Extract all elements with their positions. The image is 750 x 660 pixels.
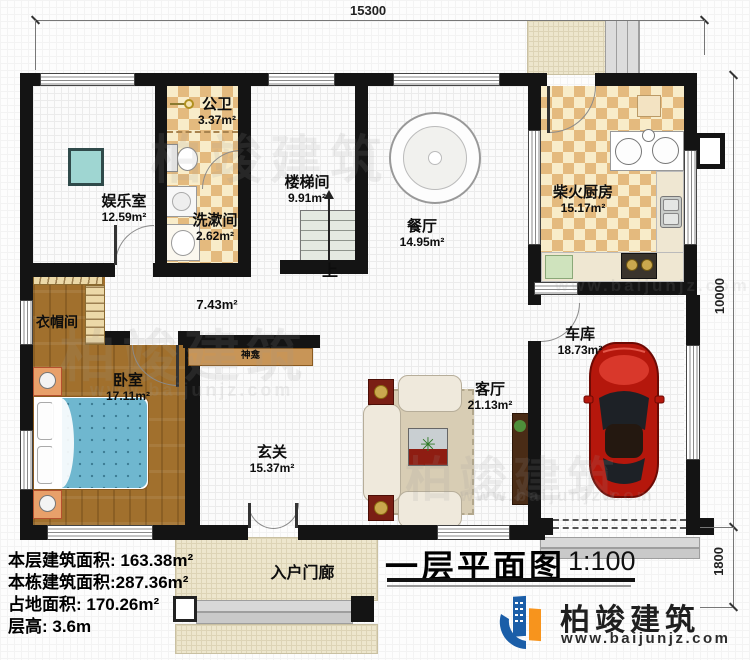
dim-line-right-lower <box>733 527 734 607</box>
dim-ext <box>35 20 36 70</box>
wall <box>686 295 700 345</box>
door-leaf <box>547 86 550 133</box>
info-block: 本层建筑面积: 163.38m² 本栋建筑面积:287.36m² 占地面积: 1… <box>8 550 193 638</box>
chimney <box>695 133 725 169</box>
info-total-area: 本栋建筑面积:287.36m² <box>8 572 193 594</box>
room-label-stairwell: 楼梯间9.91m² <box>278 175 336 205</box>
room-label-bedroom: 卧室17.11m² <box>102 373 154 403</box>
wall <box>686 460 700 518</box>
wall <box>528 341 541 518</box>
wall <box>528 295 541 305</box>
window <box>686 345 700 460</box>
wardrobe-shelf <box>85 285 105 345</box>
room-label-living: 客厅21.13m² <box>462 382 518 412</box>
room-label-cloakroom: 衣帽间 <box>28 315 86 331</box>
entry-porch-step <box>196 612 353 624</box>
dim-line-right <box>733 75 734 527</box>
room-label-public-bath: 公卫3.37m² <box>192 97 242 127</box>
wok-burner <box>652 137 679 164</box>
title-underline-thin <box>387 585 631 587</box>
entry-porch-lower <box>175 624 378 654</box>
stairs-up-label: 上 <box>318 263 342 281</box>
window <box>393 73 500 86</box>
entry-door-left <box>248 503 274 529</box>
lamp <box>39 495 56 512</box>
dim-ext <box>700 527 733 528</box>
wall <box>500 73 547 86</box>
wall <box>20 525 47 540</box>
dim-ext <box>700 607 733 608</box>
plan-scale: 1:100 <box>568 546 636 577</box>
toilet-bowl <box>177 147 198 171</box>
dim-ext <box>704 20 705 55</box>
lamp <box>39 372 56 389</box>
pass-through-window <box>534 282 578 295</box>
dim-top-width: 15300 <box>350 3 386 18</box>
floor-plan: 15300 10000 1800 <box>0 0 750 660</box>
garage-door-dashed <box>553 527 686 529</box>
blanket <box>62 398 147 488</box>
cutting-board <box>545 255 573 279</box>
wall <box>298 525 437 540</box>
sofa-bottom <box>398 491 462 528</box>
sink-basin <box>663 199 679 211</box>
window <box>20 430 33 490</box>
window <box>40 73 135 86</box>
wall <box>135 73 268 86</box>
entry-porch-step <box>196 600 353 612</box>
sofa-top <box>398 375 462 412</box>
coffee-table-plant: ✳ <box>418 436 438 456</box>
wall <box>528 86 541 130</box>
room-label-washroom: 洗漱间2.62m² <box>186 213 244 243</box>
washing-machine-drum <box>172 192 191 211</box>
wall <box>20 345 33 430</box>
wall <box>355 86 368 274</box>
window <box>684 150 697 245</box>
car <box>583 340 665 500</box>
wok-burner <box>615 138 642 165</box>
shrine-label: 神龛 <box>188 351 313 362</box>
gas-burner <box>641 259 653 271</box>
room-label-foyer: 玄关15.37m² <box>244 445 300 475</box>
dim-right-height: 10000 <box>712 278 727 314</box>
bath-curb <box>167 131 238 133</box>
dim-line-top <box>35 20 705 21</box>
wall <box>595 73 697 86</box>
gas-burner <box>626 259 638 271</box>
dining-table-center <box>428 151 442 165</box>
window <box>528 130 541 245</box>
window <box>47 525 153 540</box>
wall <box>528 518 553 535</box>
window <box>268 73 335 86</box>
room-label-porch: 入户门廊 <box>250 565 355 583</box>
room-label-garage: 车库18.73m² <box>552 327 608 357</box>
dim-porch-depth: 1800 <box>711 547 726 576</box>
porch-pillar-right <box>351 596 374 622</box>
back-porch-steps <box>605 20 640 75</box>
info-footprint-area: 占地面积: 170.26m² <box>8 594 193 616</box>
room-label-entertainment: 娱乐室12.59m² <box>89 194 159 224</box>
door-leaf <box>176 345 179 387</box>
brand-logo-icon <box>496 592 554 652</box>
wall <box>153 263 251 277</box>
door-leaf <box>248 503 251 528</box>
small-pot <box>642 129 655 142</box>
game-table <box>68 148 104 186</box>
door-leaf <box>114 225 117 265</box>
wall <box>335 73 393 86</box>
corridor-area-label: 7.43m² <box>192 298 242 313</box>
wall <box>155 86 167 268</box>
firewood-box <box>637 95 661 117</box>
shrine-wall <box>183 335 320 348</box>
wall <box>20 263 115 277</box>
room-label-kitchen: 柴火厨房15.17m² <box>548 185 618 215</box>
side-lamp <box>374 501 388 515</box>
info-floor-height: 层高: 3.6m <box>8 616 193 638</box>
sink-basin <box>663 213 679 225</box>
tv-plant <box>514 420 526 432</box>
wall <box>105 331 130 345</box>
brand-url: www.baijunjz.com <box>561 630 730 647</box>
door-leaf <box>295 503 298 528</box>
garage-door-dashed <box>553 519 686 521</box>
window <box>437 525 510 540</box>
side-lamp <box>374 385 388 399</box>
sofa-left <box>363 404 401 502</box>
wall <box>153 525 248 540</box>
info-floor-area: 本层建筑面积: 163.38m² <box>8 550 193 572</box>
room-label-dining: 餐厅14.95m² <box>396 219 448 249</box>
title-underline <box>387 578 635 582</box>
